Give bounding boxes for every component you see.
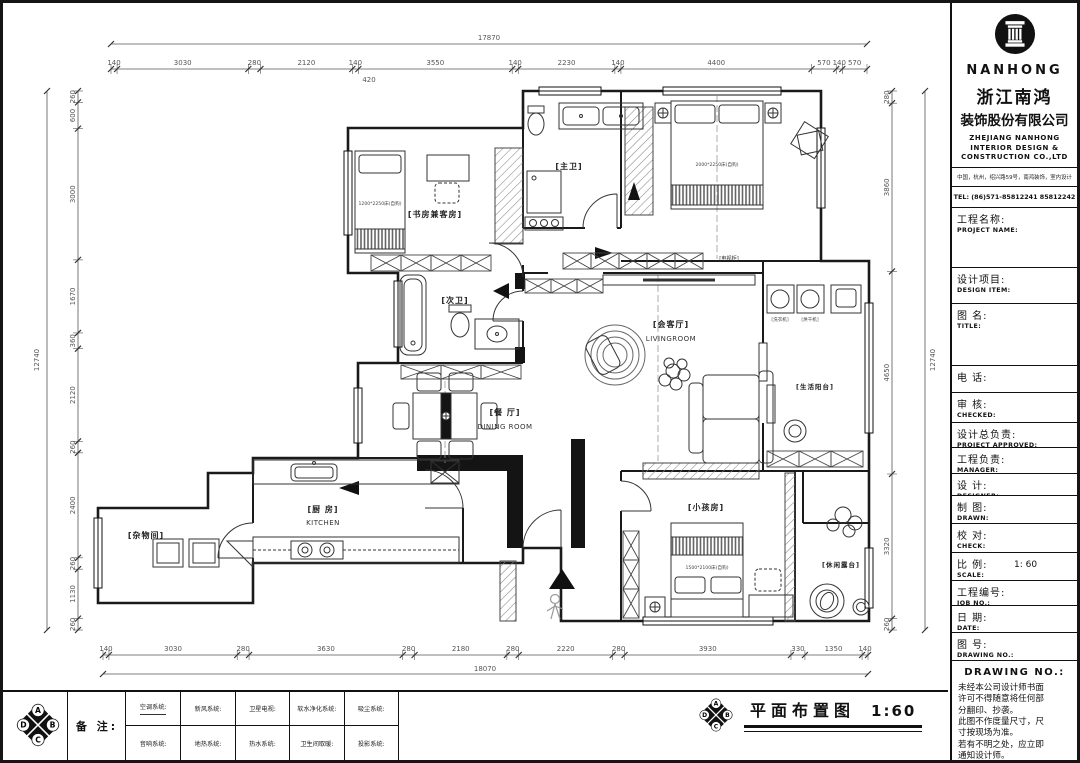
room-label-dining-en: DINING ROOM xyxy=(477,423,532,431)
room-label-dining: [餐 厅] xyxy=(489,407,520,417)
dimension-label: 260 xyxy=(69,618,77,631)
legend-cell: 卫生间取暖: xyxy=(289,726,343,760)
cabinet-cell xyxy=(623,589,639,618)
titleblock-field: 工程编号:JOB NO.: xyxy=(952,580,1077,605)
anno-tv-cabinet: [电视柜] xyxy=(719,254,739,262)
titleblock-field: 比 例:SCALE:1: 60 xyxy=(952,552,1077,580)
dimension-label: 280 xyxy=(236,645,249,653)
anno-dryer: [烘干机] xyxy=(801,316,819,323)
anno-master-bed: 2000*2250床(自购) xyxy=(695,161,738,168)
compass-icon: A B C D xyxy=(15,702,61,752)
dimension-label: 140 xyxy=(858,645,871,653)
svg-text:B: B xyxy=(50,721,56,730)
field-label-cn: 电 话: xyxy=(957,369,1072,384)
room-label-living-en: LIVINGROOM xyxy=(646,335,696,343)
dimension-label: 1350 xyxy=(825,645,843,653)
note-line: 寸按现场为准。 xyxy=(958,728,1071,739)
cabinet-cell xyxy=(799,451,831,467)
company-logo-block: NANHONG 浙江南鸿 装饰股份有限公司 ZHEJIANG NANHONG I… xyxy=(952,3,1077,161)
room-label-study: [书房兼客房] xyxy=(408,209,462,219)
svg-text:D: D xyxy=(20,721,26,730)
field-label-cn: 工程名称: xyxy=(957,211,1072,226)
legend-cell: 地热系统: xyxy=(180,726,234,760)
dimension-label: 4650 xyxy=(883,364,891,382)
cabinet-cell xyxy=(623,560,639,589)
note-line: 许可不得随意将任何部 xyxy=(958,694,1071,705)
company-name-en-1: ZHEJIANG NANHONG xyxy=(952,134,1077,142)
titleblock-field: 工程名称:PROJECT NAME: xyxy=(952,207,1077,267)
master-bedroom-furniture xyxy=(655,101,828,209)
notes-header: DRAWING NO.: xyxy=(958,667,1071,678)
dimension-label: 3000 xyxy=(69,185,77,203)
legend-cell: 空调系统: xyxy=(126,692,180,726)
dimension-label: 2230 xyxy=(558,59,576,67)
dimension-label: 2220 xyxy=(557,645,575,653)
titleblock-field: 工程负责:MANAGER: xyxy=(952,447,1077,473)
field-label-cn: 图 名: xyxy=(957,307,1072,322)
field-label-cn: 日 期: xyxy=(957,609,1072,624)
dimension-label: 280 xyxy=(883,90,891,103)
svg-text:D: D xyxy=(702,712,707,719)
company-name-en-2: INTERIOR DESIGN & xyxy=(952,144,1077,152)
company-address: 中国，杭州，绍兴路59号，南鸿装饰，室内设计 xyxy=(952,168,1077,186)
dimension-label: 3320 xyxy=(883,537,891,555)
sheet-title-compass-icon: A B C D xyxy=(698,697,734,737)
brand-name: NANHONG xyxy=(952,63,1077,78)
service-balcony-fixtures xyxy=(767,285,861,442)
field-value: 1: 60 xyxy=(1014,560,1037,570)
field-label-en: DRAWING NO.: xyxy=(957,652,1072,659)
study-wardrobe xyxy=(495,148,523,244)
sheet-title: A B C D 平面布置图 1:60 xyxy=(698,697,922,737)
dimension-lines: 1403030280212014035501402230140440057014… xyxy=(33,34,937,677)
dimension-label: 140 xyxy=(833,59,846,67)
dimension-label: 12740 xyxy=(929,349,937,371)
room-label-master-bath: [主卫] xyxy=(555,161,582,171)
dimension-label: 140 xyxy=(349,59,362,67)
company-name-cn-1: 浙江南鸿 xyxy=(952,83,1077,108)
cabinet-cell xyxy=(525,279,551,293)
dimension-label: 420 xyxy=(362,76,375,84)
cabinet-cell xyxy=(461,255,491,271)
dimension-label: 260 xyxy=(69,90,77,103)
note-line: 此图不作度量尺寸，尺 xyxy=(958,717,1071,728)
sheet-title-scale: 1:60 xyxy=(871,702,916,720)
note-line: 若有不明之处，应立即 xyxy=(958,740,1071,751)
dimension-label: 2120 xyxy=(69,386,77,404)
dimension-label: 280 xyxy=(248,59,261,67)
cabinet-cell xyxy=(831,451,863,467)
dimension-label: 330 xyxy=(791,645,804,653)
room-label-kitchen-en: KITCHEN xyxy=(306,519,340,527)
dimension-label: 3630 xyxy=(317,645,335,653)
dimension-label: 3860 xyxy=(883,178,891,196)
kids-wardrobe xyxy=(643,463,759,479)
column-logo-icon xyxy=(994,13,1036,55)
titleblock-field: 制 图:DRAWN: xyxy=(952,495,1077,523)
dimension-label: 2400 xyxy=(69,496,77,514)
field-label-en: PROJECT NAME: xyxy=(957,227,1072,234)
room-label-terrace: [休闲露台] xyxy=(822,560,860,569)
company-name-en-3: CONSTRUCTION CO.,LTD xyxy=(952,153,1077,161)
dimension-label: 3930 xyxy=(699,645,717,653)
legend-cell: 软水净化系统: xyxy=(289,692,343,726)
cabinet-cell xyxy=(441,365,481,379)
dimension-label: 3030 xyxy=(174,59,192,67)
dimension-label: 140 xyxy=(509,59,522,67)
field-label-cn: 工程负责: xyxy=(957,451,1072,466)
field-label-en: DRAWN: xyxy=(957,515,1072,522)
title-underline-thick xyxy=(744,725,922,728)
cabinet-cell xyxy=(401,255,431,271)
field-label-en: DESIGN ITEM: xyxy=(957,287,1072,294)
title-underline-thin xyxy=(744,731,922,733)
dimension-label: 140 xyxy=(611,59,624,67)
hatched-elements xyxy=(495,107,795,621)
living-room-furniture xyxy=(584,275,773,463)
note-line: 通知设计师。 xyxy=(958,751,1071,762)
field-label-cn: 校 对: xyxy=(957,527,1072,542)
titleblock-field: 设计总负责:PROJECT APPROVED: xyxy=(952,422,1077,447)
dimension-label: 570 xyxy=(817,59,830,67)
furniture-annotations: 1200*2250床(自购) 2000*2250床(自购) 1500*2100床… xyxy=(358,161,818,571)
title-block-sidebar: NANHONG 浙江南鸿 装饰股份有限公司 ZHEJIANG NANHONG I… xyxy=(950,3,1077,760)
titleblock-field: 设 计:DESIGNER: xyxy=(952,473,1077,495)
floor-plan-svg: [书房兼客房] [主卫] [次卫] [会客厅] LIVINGROOM [餐 厅]… xyxy=(3,3,948,692)
titleblock-field: 电 话: xyxy=(952,365,1077,392)
cabinet-cell xyxy=(371,255,401,271)
titleblock-field: 图 名:TITLE: xyxy=(952,303,1077,365)
entry-arrow xyxy=(549,569,575,589)
legend-cell: 卫星电视: xyxy=(235,692,289,726)
cabinet-cell xyxy=(767,451,799,467)
dimension-label: 140 xyxy=(99,645,112,653)
dimension-label: 360 xyxy=(69,334,77,347)
field-label-cn: 设计项目: xyxy=(957,271,1072,286)
dimension-label: 1130 xyxy=(69,585,77,603)
anno-study-bed: 1200*2250床(自购) xyxy=(358,200,401,207)
dimension-label: 2120 xyxy=(297,59,315,67)
cabinet-cell xyxy=(401,365,441,379)
legend-cell: 投影系统: xyxy=(344,726,398,760)
walls xyxy=(98,91,869,621)
room-label-storage: [杂物间] xyxy=(128,530,164,540)
sheet-title-text: 平面布置图 xyxy=(750,697,855,721)
titleblock-field: 图 号:DRAWING NO.: xyxy=(952,632,1077,660)
notes-label: 备 注: xyxy=(67,692,126,760)
dimension-label: 4400 xyxy=(707,59,725,67)
note-line: 分翻印、抄袭。 xyxy=(958,706,1071,717)
dimension-label: 260 xyxy=(69,440,77,453)
field-label-en: CHECK: xyxy=(957,543,1072,550)
field-label-cn: 设计总负责: xyxy=(957,426,1072,441)
field-label-cn: 工程编号: xyxy=(957,584,1072,599)
room-label-living: [会客厅] xyxy=(653,319,689,329)
dimension-label: 1670 xyxy=(69,287,77,305)
svg-text:A: A xyxy=(714,701,719,708)
svg-text:C: C xyxy=(35,735,41,744)
dimension-label: 570 xyxy=(848,59,861,67)
dimension-label: 2180 xyxy=(452,645,470,653)
note-line: 未经本公司设计师书面 xyxy=(958,683,1071,694)
field-label-en: SCALE: xyxy=(957,572,1072,579)
legend-cell: 音响系统: xyxy=(126,726,180,760)
field-label-en: CHECKED: xyxy=(957,412,1072,419)
cabinet-cell xyxy=(551,279,577,293)
dimension-label: 3550 xyxy=(426,59,444,67)
titleblock-fields: 工程名称:PROJECT NAME:设计项目:DESIGN ITEM:图 名:T… xyxy=(952,207,1077,660)
cabinet-cell xyxy=(563,253,591,269)
cabinet-cell xyxy=(431,255,461,271)
field-label-en: TITLE: xyxy=(957,323,1072,330)
field-label-cn: 设 计: xyxy=(957,477,1072,492)
dimension-label: 3030 xyxy=(164,645,182,653)
svg-text:C: C xyxy=(714,724,719,731)
room-label-kids: [小孩房] xyxy=(688,502,724,512)
legend-cell: 吸尘系统: xyxy=(344,692,398,726)
field-label-cn: 审 核: xyxy=(957,396,1072,411)
cabinet-cell xyxy=(623,531,639,560)
company-tel: TEL: (86)571-85812241 85812242 xyxy=(952,187,1077,207)
legend-cell: 热水系统: xyxy=(235,726,289,760)
dimension-label: 280 xyxy=(402,645,415,653)
company-name-cn-2: 装饰股份有限公司 xyxy=(952,109,1077,129)
windows xyxy=(94,87,873,625)
anno-kids-bed: 1500*2100床(自购) xyxy=(685,564,728,571)
field-label-cn: 图 号: xyxy=(957,636,1072,651)
field-label-cn: 制 图: xyxy=(957,499,1072,514)
svg-text:B: B xyxy=(725,712,730,719)
dimension-label: 280 xyxy=(612,645,625,653)
dimension-label: 18070 xyxy=(474,665,496,673)
dimension-label: 17870 xyxy=(478,34,500,42)
room-label-service-balcony: [生活阳台] xyxy=(796,382,834,391)
dimension-label: 140 xyxy=(107,59,120,67)
room-label-kitchen: [厨 房] xyxy=(307,504,338,514)
wall-hatch xyxy=(500,561,516,621)
cabinet-cell xyxy=(577,279,603,293)
titleblock-field: 设计项目:DESIGN ITEM: xyxy=(952,267,1077,303)
dimension-label: 260 xyxy=(69,557,77,570)
floor-plan: [书房兼客房] [主卫] [次卫] [会客厅] LIVINGROOM [餐 厅]… xyxy=(3,3,948,692)
anno-washer: [洗衣机] xyxy=(771,316,789,323)
titleblock-field: 校 对:CHECK: xyxy=(952,523,1077,552)
kitchen-fixtures xyxy=(253,460,459,563)
cabinet-cell xyxy=(481,365,521,379)
storage-furniture xyxy=(153,539,253,567)
dimension-label: 280 xyxy=(506,645,519,653)
dimension-label: 12740 xyxy=(33,349,41,371)
dimension-label: 260 xyxy=(883,618,891,631)
titleblock-notes: DRAWING NO.: 未经本公司设计师书面许可不得随意将任何部分翻印、抄袭。… xyxy=(952,660,1077,763)
systems-legend-table: 空调系统:新风系统:卫星电视:软水净化系统:吸尘系统:音响系统:地热系统:热水系… xyxy=(125,692,399,760)
titleblock-field: 日 期:DATE: xyxy=(952,605,1077,632)
room-label-second-bath: [次卫] xyxy=(441,295,468,305)
drawing-sheet: [书房兼客房] [主卫] [次卫] [会客厅] LIVINGROOM [餐 厅]… xyxy=(0,0,1080,763)
dimension-label: 600 xyxy=(69,109,77,122)
legend-cell: 新风系统: xyxy=(180,692,234,726)
svg-text:A: A xyxy=(35,706,41,715)
titleblock-field: 审 核:CHECKED: xyxy=(952,392,1077,422)
field-label-en: DATE: xyxy=(957,625,1072,632)
